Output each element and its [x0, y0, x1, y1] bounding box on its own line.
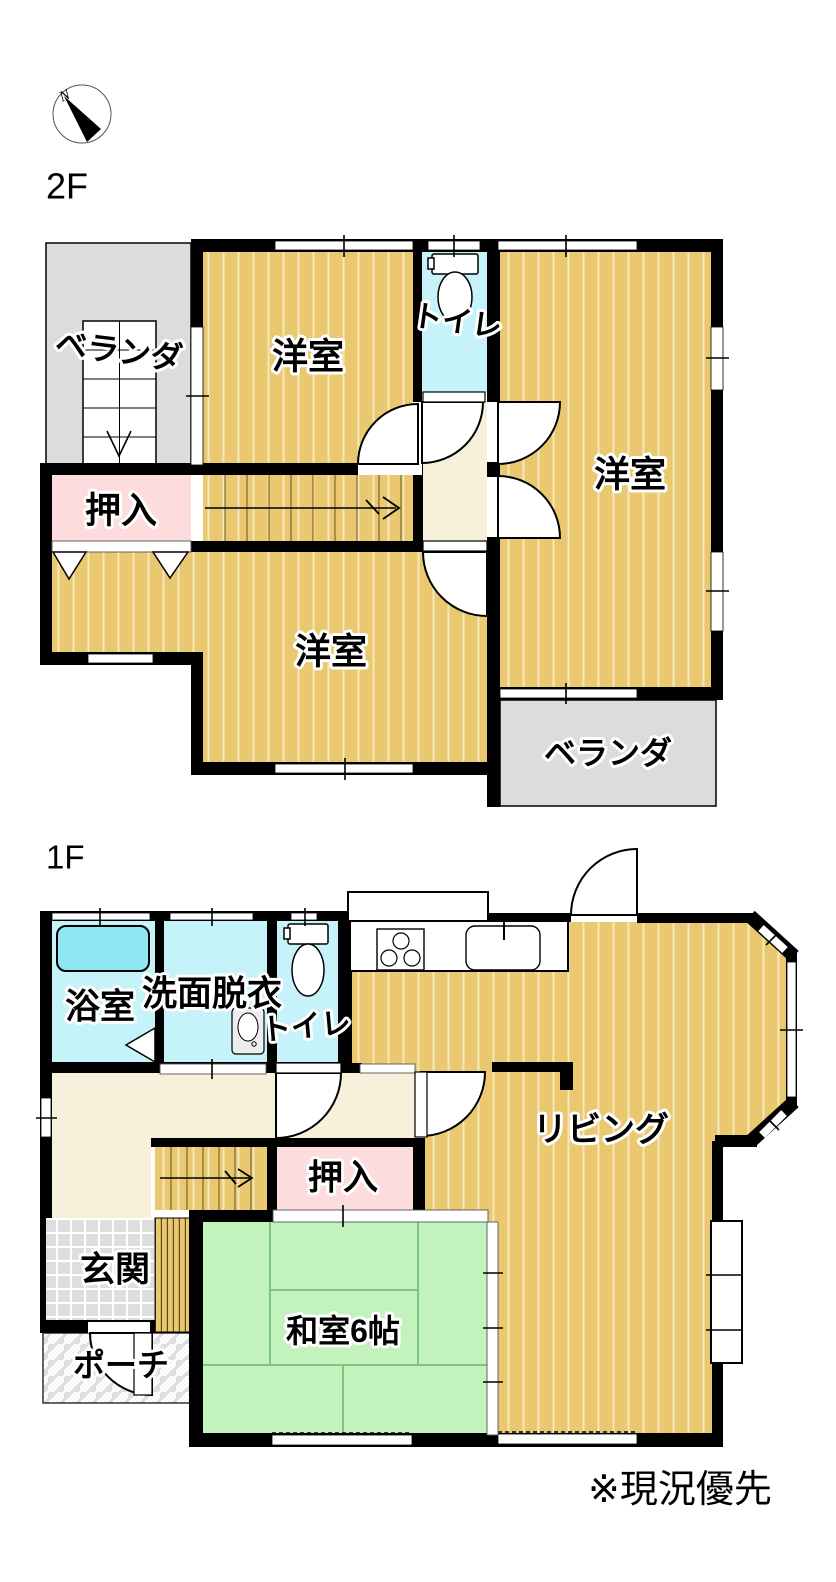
window [498, 1434, 637, 1444]
window [291, 913, 317, 920]
washroom-sliding-door [160, 1064, 266, 1074]
floor-1f-label: 1F [46, 839, 85, 876]
window [88, 654, 153, 663]
closet-2f-door-track [52, 541, 191, 552]
label-washroom: 洗面脱衣 [142, 975, 282, 1014]
compass: N [53, 85, 111, 143]
label-bedroom-s: 洋室 [295, 631, 367, 672]
label-japanese-room: 和室6帖 [286, 1313, 400, 1349]
label-closet-1f: 押入 [308, 1159, 378, 1198]
door-arc-living-entry [571, 849, 637, 915]
stairs-2f [203, 475, 417, 541]
floor-2f-label: 2F [46, 166, 88, 207]
note-text: ※現況優先 [588, 1469, 772, 1511]
label-bedroom-e: 洋室 [594, 454, 666, 495]
door-leaf-bedroom-s [423, 541, 487, 551]
bay-window [711, 1221, 742, 1363]
living-floor-strip [425, 1137, 722, 1222]
window [272, 1435, 412, 1445]
room-bedroom-s-floor-upper [52, 552, 487, 653]
label-closet-2f: 押入 [85, 490, 157, 531]
living-floor-south [493, 1222, 722, 1433]
bathtub-icon [57, 926, 149, 971]
entrance-step-boards [155, 1218, 192, 1332]
window [52, 913, 150, 920]
window [500, 689, 637, 698]
door-leaf-toilet-2f [423, 392, 485, 402]
hallway-1f-west [52, 1138, 151, 1218]
floorplan-page: N 2F 1F 洋室 トイレ 洋室 ベランダ 押入 洋室 ベランダ 浴室 洗面脱… [0, 0, 836, 1582]
kitchen-sliding-door [360, 1064, 415, 1073]
door-leaf-toilet-1f [276, 1063, 341, 1073]
window [275, 764, 413, 773]
window [498, 241, 637, 250]
label-porch: ポーチ [73, 1347, 169, 1383]
closet-1f-sliding-door [273, 1210, 488, 1222]
kitchen-counter [348, 892, 568, 971]
door-leaf-living [415, 1072, 427, 1137]
label-bedroom-nw: 洋室 [272, 336, 344, 377]
hallway-1f-floor [52, 1073, 415, 1138]
label-veranda-se: ベランダ [544, 735, 672, 771]
label-entrance: 玄関 [80, 1251, 150, 1290]
label-bath: 浴室 [65, 987, 135, 1027]
floorplan-drawing: N 2F 1F 洋室 トイレ 洋室 ベランダ 押入 洋室 ベランダ 浴室 洗面脱… [0, 0, 836, 1582]
stove-icon [377, 929, 424, 970]
label-living: リビング [533, 1111, 669, 1149]
stairs-1f [155, 1147, 267, 1210]
sink-icon [466, 918, 540, 970]
